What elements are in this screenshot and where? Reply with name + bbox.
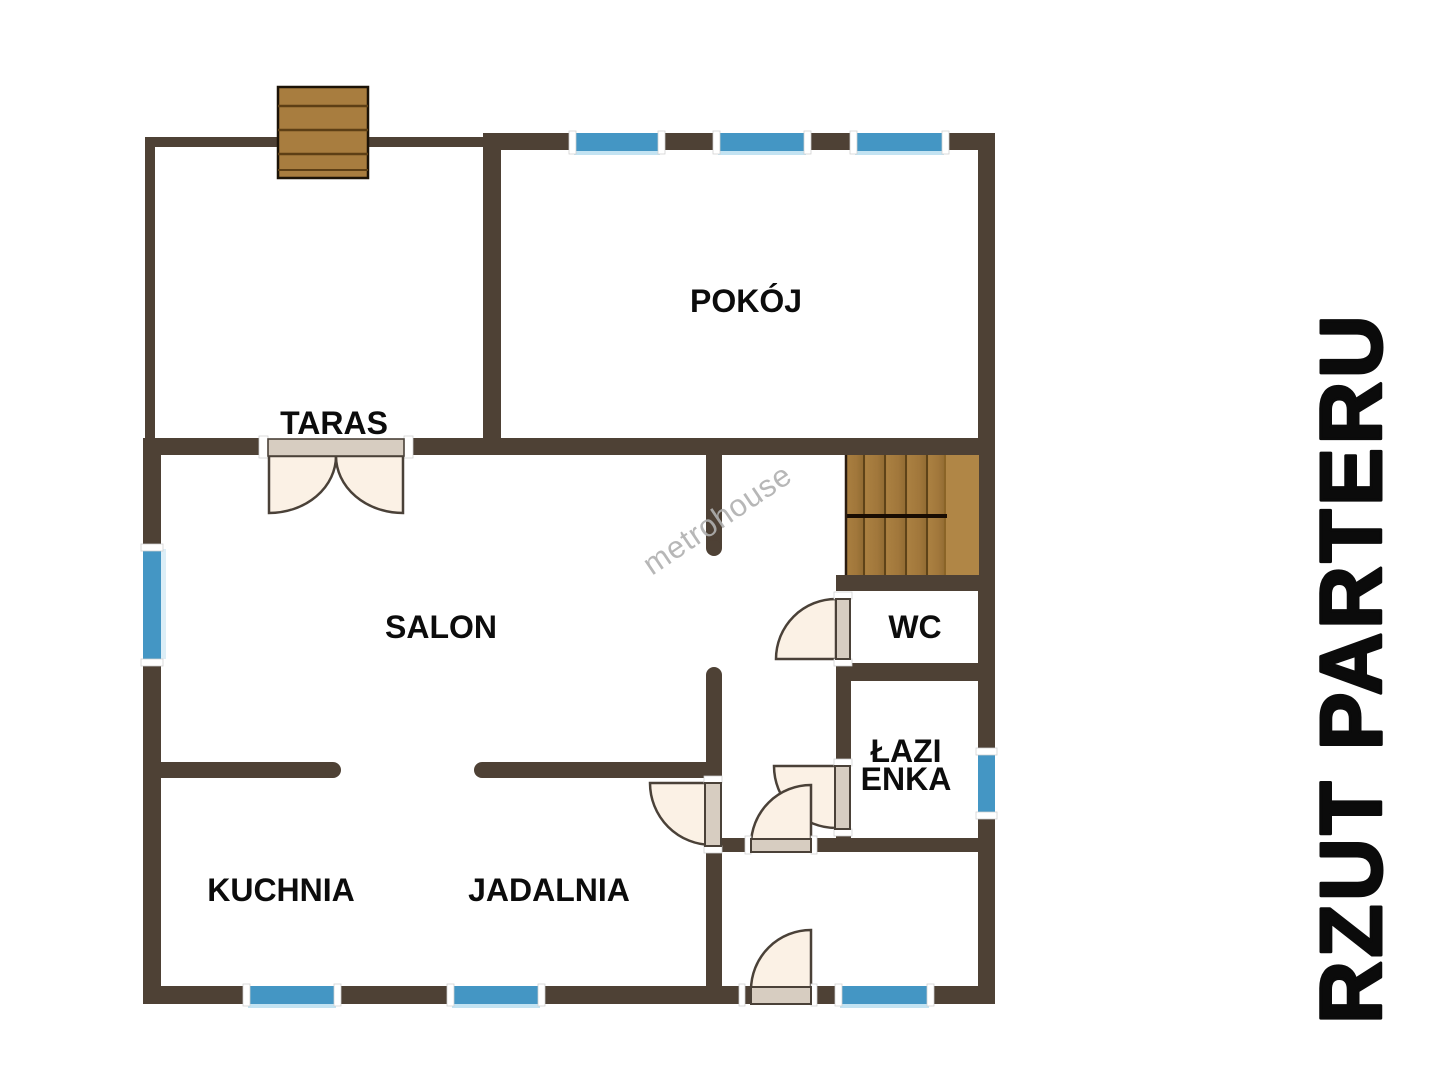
svg-text:SALON: SALON <box>385 609 497 645</box>
svg-text:POKÓJ: POKÓJ <box>690 283 802 319</box>
svg-text:WC: WC <box>888 609 941 645</box>
svg-text:JADALNIA: JADALNIA <box>468 872 630 908</box>
svg-text:KUCHNIA: KUCHNIA <box>207 872 355 908</box>
svg-text:RZUT PARTERU: RZUT PARTERU <box>1303 312 1400 1024</box>
svg-text:TARAS: TARAS <box>280 405 388 441</box>
svg-text:ENKA: ENKA <box>861 761 952 797</box>
